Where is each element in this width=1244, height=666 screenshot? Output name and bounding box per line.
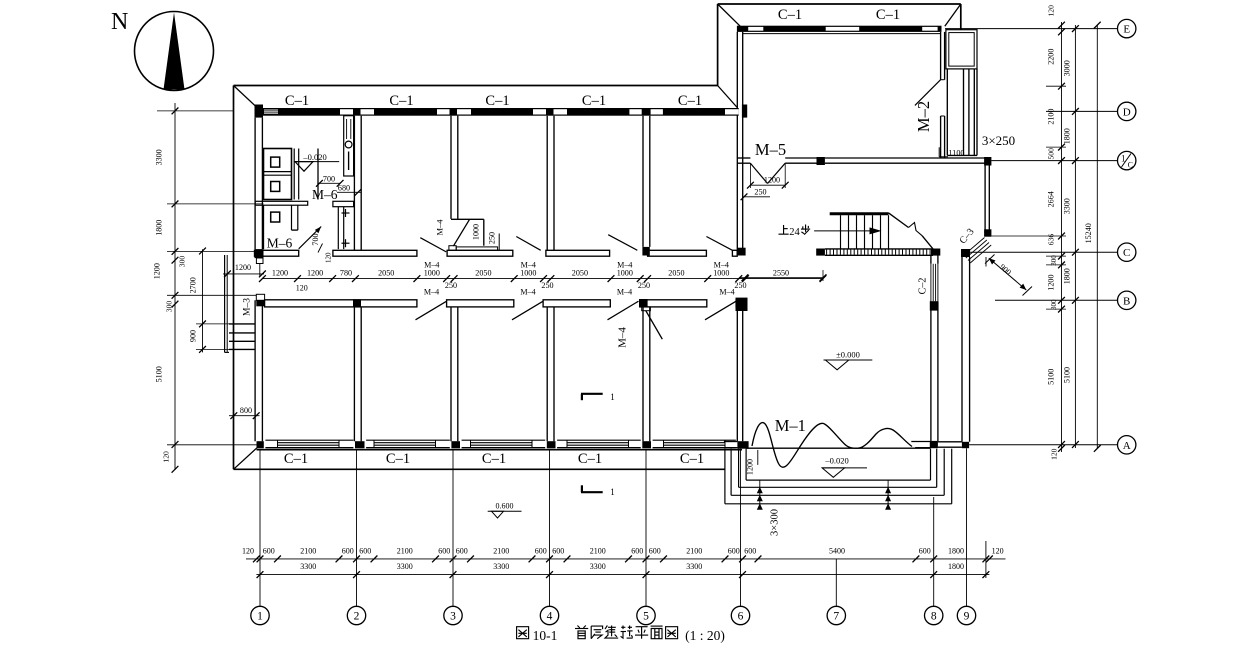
svg-text:250: 250: [734, 281, 746, 290]
svg-text:1200: 1200: [153, 263, 162, 279]
svg-text:600: 600: [456, 546, 468, 555]
svg-text:1800: 1800: [155, 220, 164, 236]
svg-text:1000: 1000: [713, 268, 729, 277]
svg-text:600: 600: [728, 546, 740, 555]
svg-text:250: 250: [445, 281, 457, 290]
svg-text:3300: 3300: [686, 562, 702, 571]
svg-text:(1 : 20): (1 : 20): [685, 628, 725, 643]
svg-text:C–1: C–1: [485, 93, 509, 109]
svg-text:2050: 2050: [572, 268, 588, 277]
svg-text:M–5: M–5: [755, 140, 786, 159]
svg-text:1800: 1800: [948, 546, 964, 555]
svg-text:2050: 2050: [378, 268, 394, 277]
svg-text:C–1: C–1: [578, 451, 602, 467]
svg-text:–0.020: –0.020: [824, 456, 848, 466]
svg-text:2100: 2100: [397, 546, 413, 555]
svg-text:1800: 1800: [1063, 268, 1072, 284]
svg-text:1000: 1000: [520, 268, 536, 277]
svg-text:6: 6: [738, 611, 744, 623]
svg-text:600: 600: [649, 546, 661, 555]
svg-text:600: 600: [263, 546, 275, 555]
svg-text:M–6: M–6: [312, 187, 338, 202]
svg-text:–0.020: –0.020: [302, 152, 326, 162]
svg-text:2050: 2050: [475, 268, 491, 277]
svg-text:120: 120: [162, 451, 171, 463]
svg-text:1800: 1800: [1063, 128, 1072, 144]
svg-text:600: 600: [919, 546, 931, 555]
svg-text:3300: 3300: [493, 562, 509, 571]
svg-text:C–1: C–1: [386, 451, 410, 467]
svg-text:C–1: C–1: [876, 7, 900, 23]
svg-text:C–1: C–1: [678, 93, 702, 109]
svg-text:250: 250: [638, 281, 650, 290]
svg-text:3×300: 3×300: [770, 509, 781, 536]
svg-text:600: 600: [552, 546, 564, 555]
svg-text:1000: 1000: [472, 224, 481, 240]
svg-text:120: 120: [242, 546, 254, 555]
svg-text:8: 8: [931, 611, 937, 623]
svg-text:600: 600: [438, 546, 450, 555]
svg-text:C–1: C–1: [389, 93, 413, 109]
svg-text:1200: 1200: [272, 268, 288, 277]
svg-text:2100: 2100: [300, 546, 316, 555]
svg-text:2664: 2664: [1047, 191, 1056, 207]
svg-text:3000: 3000: [1063, 60, 1072, 76]
svg-text:3300: 3300: [590, 562, 606, 571]
svg-text:600: 600: [631, 546, 643, 555]
svg-text:1: 1: [610, 487, 615, 497]
svg-text:2100: 2100: [493, 546, 509, 555]
svg-text:2200: 2200: [1047, 49, 1056, 65]
svg-text:1200: 1200: [235, 263, 251, 272]
svg-text:C–2: C–2: [918, 278, 929, 295]
svg-text:3300: 3300: [300, 562, 316, 571]
svg-text:24: 24: [789, 227, 800, 238]
svg-text:2100: 2100: [686, 546, 702, 555]
svg-text:7: 7: [833, 611, 839, 623]
svg-text:M–4: M–4: [617, 288, 632, 297]
svg-text:2050: 2050: [668, 268, 684, 277]
svg-text:2: 2: [354, 611, 360, 623]
svg-text:M–4: M–4: [435, 219, 445, 236]
svg-text:250: 250: [541, 281, 553, 290]
svg-text:250: 250: [487, 232, 496, 244]
svg-text:M–4: M–4: [617, 327, 629, 348]
svg-text:1200: 1200: [1047, 275, 1056, 291]
svg-text:700: 700: [311, 233, 320, 245]
svg-text:3: 3: [450, 611, 456, 623]
svg-text:700: 700: [323, 175, 335, 184]
svg-text:900: 900: [189, 330, 198, 342]
svg-text:600: 600: [342, 546, 354, 555]
svg-text:680: 680: [338, 184, 350, 193]
svg-text:1000: 1000: [424, 268, 440, 277]
svg-text:300: 300: [165, 301, 174, 313]
svg-text:600: 600: [359, 546, 371, 555]
svg-text:3300: 3300: [397, 562, 413, 571]
svg-text:C: C: [1123, 247, 1130, 259]
svg-text:500: 500: [1047, 148, 1056, 160]
svg-text:D: D: [1123, 106, 1131, 118]
svg-text:2550: 2550: [773, 268, 789, 277]
svg-text:2100: 2100: [590, 546, 606, 555]
svg-text:120: 120: [1049, 448, 1058, 460]
svg-text:4: 4: [547, 611, 553, 623]
svg-text:5100: 5100: [1047, 369, 1056, 385]
svg-text:3300: 3300: [155, 149, 164, 165]
svg-text:5100: 5100: [1063, 367, 1072, 383]
svg-text:C: C: [1128, 161, 1133, 170]
svg-text:M–6: M–6: [267, 236, 293, 251]
svg-text:C–1: C–1: [680, 451, 704, 467]
svg-text:1000: 1000: [617, 268, 633, 277]
svg-text:780: 780: [340, 268, 352, 277]
svg-text:1100: 1100: [949, 149, 965, 158]
svg-text:1200: 1200: [764, 176, 780, 185]
svg-text:M–3: M–3: [243, 298, 253, 316]
svg-text:600: 600: [535, 546, 547, 555]
svg-text:2700: 2700: [189, 277, 198, 293]
svg-text:3300: 3300: [1063, 198, 1072, 214]
svg-text:C–1: C–1: [285, 93, 309, 109]
svg-text:B: B: [1123, 295, 1130, 307]
svg-text:5100: 5100: [155, 366, 164, 382]
svg-text:120: 120: [1047, 5, 1056, 17]
svg-text:1: 1: [257, 611, 263, 623]
svg-text:800: 800: [240, 406, 252, 415]
svg-text:M–4: M–4: [424, 288, 439, 297]
svg-text:3×250: 3×250: [982, 133, 1015, 148]
svg-text:C–1: C–1: [582, 93, 606, 109]
svg-text:E: E: [1123, 24, 1130, 36]
svg-text:1200: 1200: [745, 459, 754, 475]
svg-text:M–2: M–2: [914, 101, 933, 132]
svg-text:250: 250: [754, 187, 766, 196]
svg-text:120: 120: [992, 546, 1004, 555]
svg-text:10-1: 10-1: [533, 628, 558, 643]
svg-text:N: N: [111, 9, 128, 35]
svg-text:0.600: 0.600: [496, 502, 514, 511]
svg-text:636: 636: [1047, 234, 1056, 246]
svg-text:C–1: C–1: [284, 451, 308, 467]
svg-text:15240: 15240: [1084, 223, 1093, 243]
svg-text:M–4: M–4: [520, 288, 535, 297]
svg-text:5: 5: [643, 611, 649, 623]
svg-text:9: 9: [964, 611, 970, 623]
svg-text:±0.000: ±0.000: [836, 350, 860, 360]
svg-text:1200: 1200: [307, 268, 323, 277]
svg-text:5400: 5400: [829, 546, 845, 555]
svg-text:600: 600: [744, 546, 756, 555]
svg-text:A: A: [1123, 440, 1131, 452]
svg-text:M–1: M–1: [775, 416, 806, 435]
svg-text:C–1: C–1: [482, 451, 506, 467]
svg-text:120: 120: [325, 252, 333, 263]
svg-text:120: 120: [296, 284, 308, 293]
svg-text:C–1: C–1: [778, 7, 802, 23]
svg-text:300: 300: [178, 256, 187, 268]
svg-text:1800: 1800: [948, 562, 964, 571]
svg-text:M–4: M–4: [719, 288, 734, 297]
svg-text:1: 1: [610, 392, 615, 402]
